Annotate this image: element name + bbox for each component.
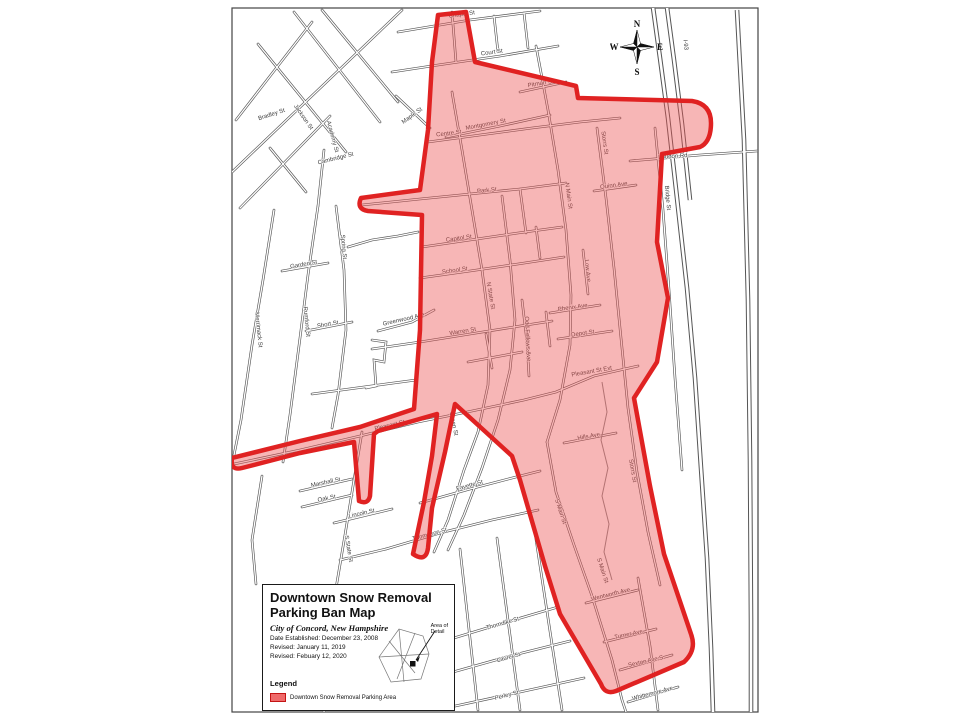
parking-ban-legend-swatch	[270, 693, 286, 702]
legend-heading: Legend	[270, 679, 297, 688]
inset-arrow	[416, 631, 435, 660]
map-title-line2: Parking Ban Map	[270, 606, 447, 621]
compass-rose: N E S W	[610, 16, 666, 78]
compass-west-label: W	[610, 42, 619, 52]
title-block: Downtown Snow Removal Parking Ban Map Ci…	[262, 584, 455, 711]
legend-item-label: Downtown Snow Removal Parking Area	[290, 695, 396, 701]
map-canvas: Chapel StCourt StPitman StMaple StMontgo…	[0, 0, 960, 720]
map-title: Downtown Snow Removal Parking Ban Map	[270, 591, 447, 620]
area-of-detail-inset-map	[371, 621, 449, 695]
legend-row: Downtown Snow Removal Parking Area	[270, 693, 396, 702]
compass-east-label: E	[657, 42, 663, 52]
street-label: I-93	[681, 39, 688, 51]
map-title-line1: Downtown Snow Removal	[270, 591, 447, 606]
map-page: Chapel StCourt StPitman StMaple StMontgo…	[0, 0, 960, 720]
compass-south-label: S	[634, 67, 639, 77]
inset-detail-marker	[410, 661, 416, 667]
inset-street-lines	[379, 629, 429, 682]
compass-north-label: N	[634, 19, 641, 29]
